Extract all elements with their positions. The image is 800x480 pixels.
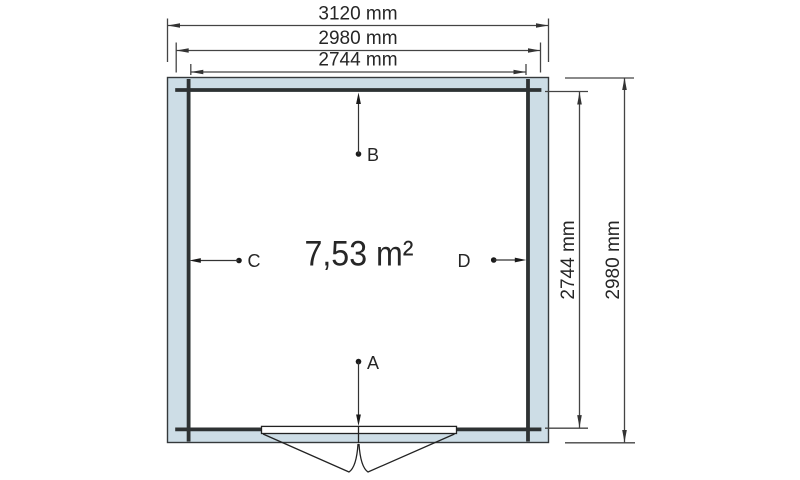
svg-text:B: B [367,145,379,165]
svg-text:2980 mm: 2980 mm [603,220,624,299]
svg-text:7,53 m²: 7,53 m² [305,234,414,274]
svg-text:2744 mm: 2744 mm [558,220,579,299]
svg-text:C: C [248,251,261,271]
svg-text:2744 mm: 2744 mm [318,50,397,71]
svg-text:3120 mm: 3120 mm [318,4,397,25]
svg-text:2980 mm: 2980 mm [318,28,397,49]
svg-text:D: D [458,251,471,271]
svg-text:A: A [367,353,379,373]
